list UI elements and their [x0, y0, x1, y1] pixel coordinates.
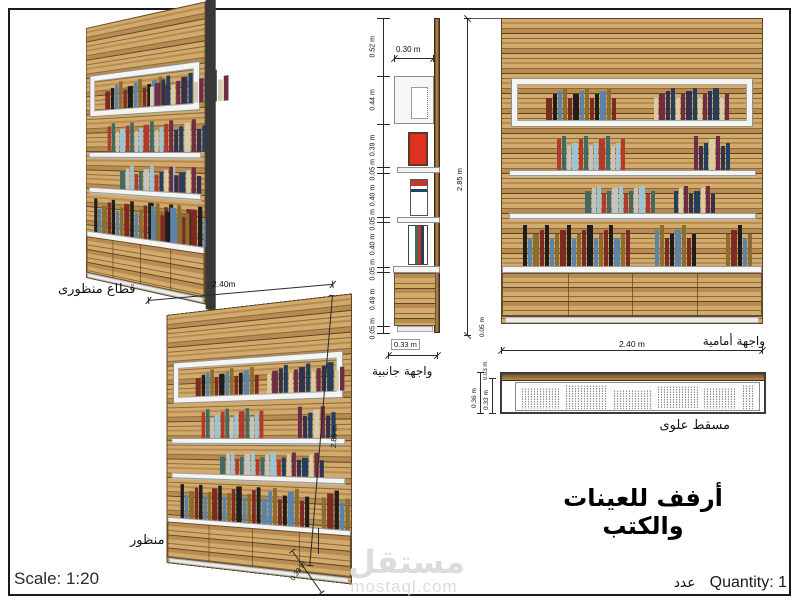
book-spine — [558, 91, 562, 120]
book-spine — [193, 81, 197, 102]
book-spine — [139, 209, 143, 239]
book-spine — [239, 373, 243, 394]
book-group — [523, 225, 630, 267]
book-spine — [621, 139, 625, 169]
book-spine — [660, 225, 664, 266]
book-spine — [139, 171, 143, 191]
book-spine — [261, 498, 267, 524]
dim-side-top-depth: 0.30 m — [396, 45, 420, 54]
book-spine — [689, 194, 693, 213]
book-spine — [131, 122, 135, 152]
book-spine — [557, 139, 561, 169]
book-spine — [302, 457, 308, 477]
book-spine — [731, 230, 737, 267]
boxed-shelf — [91, 62, 199, 116]
book-spine — [682, 225, 686, 266]
book-spine — [609, 225, 613, 266]
book-spine — [188, 73, 192, 103]
book-spine — [309, 455, 313, 478]
book-spine — [138, 79, 142, 107]
book-spine — [191, 167, 195, 194]
book-spine — [320, 460, 324, 478]
book-spine — [726, 234, 730, 267]
book-spine — [701, 188, 705, 213]
book-spine — [245, 408, 249, 438]
book-spine — [585, 191, 591, 213]
book-spine — [206, 372, 209, 395]
book-spine — [256, 459, 260, 476]
book-spine — [708, 91, 712, 120]
bookcase-panel — [167, 293, 352, 584]
quantity-arabic-label: عدد — [674, 575, 696, 591]
dim-front-height: 2.85 m — [455, 155, 464, 191]
extension-line — [318, 528, 319, 554]
book-spine — [223, 75, 228, 100]
book-spine — [273, 487, 277, 524]
book-spine — [111, 88, 114, 109]
book-spine — [303, 416, 307, 438]
book-spine — [587, 225, 593, 266]
book-spine — [174, 129, 178, 151]
book-spine — [242, 497, 246, 522]
shelf-board — [509, 170, 756, 176]
book-spine — [251, 452, 255, 476]
view-label-front: واجهة أمامية — [703, 334, 765, 348]
book-spine — [639, 186, 645, 213]
book-spine — [95, 198, 98, 232]
cabinet-top-profile — [393, 266, 440, 273]
book-spine — [226, 454, 230, 475]
book-spine — [703, 94, 707, 119]
book-spine — [269, 491, 273, 524]
book-spine — [105, 91, 110, 110]
book-spine — [185, 213, 189, 245]
book-spine — [340, 367, 344, 390]
book-spine — [607, 191, 611, 213]
book-spine — [190, 210, 196, 247]
boxed-shelf — [174, 352, 343, 403]
book-spine — [577, 234, 581, 267]
book-spine — [533, 234, 539, 267]
book-spine — [709, 139, 715, 169]
book-spine — [597, 186, 601, 213]
book-spine — [250, 417, 254, 438]
quantity-block: عدد Quantity: 1 — [674, 574, 787, 592]
book-spine — [698, 98, 702, 120]
shelf-board — [89, 152, 201, 158]
book-spine — [306, 363, 310, 391]
book-spine — [164, 169, 168, 192]
book-spine — [284, 365, 288, 393]
book-spine — [572, 238, 576, 267]
dim-front-base: 0.05 m — [479, 313, 486, 337]
book-spine — [711, 194, 715, 213]
book-group — [546, 87, 616, 119]
book-spine — [212, 488, 217, 520]
book-spine — [180, 484, 183, 518]
book-spine — [120, 207, 123, 236]
book-spine — [161, 79, 165, 105]
shelf-books-row — [181, 361, 334, 396]
book-spine — [135, 131, 139, 152]
book-group — [585, 185, 655, 213]
book-spine — [261, 457, 265, 476]
book-spine — [144, 124, 150, 152]
book-spine — [634, 188, 638, 213]
book-spine — [294, 370, 298, 392]
book-spine — [239, 411, 245, 437]
book-spine — [595, 94, 599, 119]
book-spine — [282, 457, 286, 477]
book-spine — [184, 494, 187, 518]
book-spine — [611, 146, 615, 170]
book-spine — [202, 375, 205, 396]
view-perspective-section: قطاع منظورى — [48, 8, 258, 308]
book-spine — [225, 409, 229, 438]
book-spine — [629, 191, 633, 213]
book-spine — [567, 146, 571, 170]
book-spine — [721, 146, 725, 170]
book-spine — [523, 225, 527, 266]
book-spine — [199, 484, 202, 519]
book-spine — [687, 238, 691, 267]
book-spine — [277, 460, 281, 477]
book-spine — [612, 188, 618, 213]
book-spine — [207, 492, 210, 520]
book-spine — [185, 122, 191, 152]
book-spine — [308, 413, 312, 438]
book-spine — [150, 86, 154, 106]
boxed-shelf — [512, 79, 751, 127]
shelf-books-row — [502, 225, 762, 267]
book-spine — [230, 368, 234, 394]
book-spine — [725, 94, 729, 119]
book-spine — [283, 495, 287, 525]
book-spine — [606, 136, 610, 170]
book-spine — [686, 91, 692, 120]
book-spine — [693, 88, 697, 120]
sheet-title: أرفف للعينات والكتب — [540, 484, 746, 540]
book-spine — [297, 460, 301, 477]
bookcase-panel — [501, 18, 763, 324]
dimension-segment: 0.52 m — [370, 18, 396, 76]
book-spine — [679, 188, 683, 213]
book-spine — [599, 234, 603, 267]
book-spine — [217, 79, 222, 101]
book-spine — [616, 143, 620, 170]
shelf-books-row — [502, 185, 762, 213]
book-spine — [607, 88, 611, 120]
dimension-line — [501, 350, 763, 351]
book-spine — [580, 91, 584, 120]
book-spine — [278, 499, 282, 525]
book-spine — [98, 209, 101, 233]
dim-plan-outer: 0.36 m — [471, 378, 478, 408]
book-spine — [134, 82, 138, 107]
book-spine — [151, 206, 155, 240]
book-spine — [174, 175, 178, 193]
book-spine — [675, 230, 681, 267]
book-spine — [706, 186, 710, 213]
shelf-board-profile — [397, 217, 440, 223]
perspective-model — [167, 293, 352, 584]
book-spine — [245, 454, 251, 476]
book-spine — [236, 486, 242, 522]
book-spine — [694, 136, 698, 170]
book-spine — [684, 186, 688, 213]
book-spine — [255, 414, 259, 438]
book-spine — [170, 208, 176, 243]
book-spine — [602, 194, 606, 213]
book-spine — [568, 98, 572, 120]
view-label-plan: مسقط علوى — [659, 418, 730, 433]
book-spine — [227, 493, 231, 521]
book-group — [694, 135, 730, 170]
book-spine — [130, 166, 133, 190]
book-spine — [713, 88, 719, 120]
book-spine — [218, 485, 222, 520]
book-spine — [655, 230, 659, 267]
book-spine — [743, 238, 747, 267]
book-spine — [600, 91, 606, 120]
book-group — [322, 489, 350, 530]
book-spine — [334, 490, 338, 529]
book-spine — [671, 88, 675, 120]
book-group — [267, 360, 344, 393]
view-top-plan: 0.36 m 0.33 m 0.03 m مسقط علوى — [470, 366, 770, 438]
book-spine — [210, 418, 214, 438]
cabinet-base — [505, 317, 760, 323]
book-spine — [567, 225, 571, 266]
book-group — [108, 119, 169, 152]
book-spine — [176, 80, 180, 104]
book-spine — [560, 230, 566, 267]
book-spine — [112, 123, 115, 152]
dimension-segment: 0.44 m — [370, 76, 396, 125]
cabinet-profile — [394, 273, 436, 326]
book-spine — [160, 127, 164, 152]
book-spine — [155, 203, 159, 241]
book-spine — [345, 498, 349, 529]
book-spine — [748, 234, 752, 267]
book-spine — [621, 234, 625, 267]
book-spine — [231, 452, 235, 476]
book-spine — [177, 205, 181, 245]
book-spine — [573, 94, 579, 119]
book-spine — [240, 456, 244, 475]
book-spine — [150, 166, 154, 191]
book-spine — [171, 84, 175, 105]
book-group — [654, 87, 729, 119]
book-spine — [155, 130, 159, 152]
bookcase-panel — [86, 1, 206, 304]
book-spine — [199, 78, 203, 103]
book-spine — [295, 488, 299, 526]
book-spine — [550, 238, 554, 267]
book-spine — [279, 368, 283, 393]
book-spine — [651, 191, 655, 213]
book-spine — [119, 81, 122, 108]
book-spine — [676, 98, 680, 120]
book-spine — [555, 234, 559, 267]
book-spine — [231, 489, 235, 521]
perspective-section-model — [86, 1, 206, 304]
book-spine — [313, 410, 319, 438]
book-spine — [612, 98, 616, 120]
book-spine — [299, 366, 305, 391]
book-spine — [646, 194, 650, 213]
shelf-books-row — [87, 118, 205, 152]
book-spine — [196, 378, 201, 396]
plan-outline — [500, 372, 766, 414]
book-spine — [143, 87, 147, 107]
book-spine — [120, 170, 125, 189]
book-spine — [716, 136, 720, 170]
book-spine — [624, 194, 628, 213]
book-group — [196, 366, 259, 396]
dimension-line — [394, 58, 434, 59]
book-spine — [108, 203, 111, 235]
shelf-books-row — [502, 135, 762, 170]
book-spine — [289, 373, 293, 392]
book-spine — [670, 234, 674, 267]
book-profile — [408, 225, 428, 265]
book-group — [220, 451, 286, 477]
book-spine — [738, 225, 742, 266]
book-spine — [546, 98, 552, 120]
book-spine — [126, 125, 129, 152]
book-spine — [126, 168, 129, 190]
book-spine — [327, 494, 333, 529]
book-spine — [545, 225, 549, 266]
book-spine — [267, 374, 271, 393]
view-label-side: واجهة جانبية — [372, 364, 432, 378]
book-spine — [197, 129, 201, 152]
view-front-elevation: 2.85 m 0.05 m 2.40 m واجهة أمامية — [455, 10, 793, 362]
book-spine — [562, 136, 566, 170]
dim-plan-inner: 0.33 m — [483, 382, 490, 410]
book-spine — [250, 367, 254, 394]
extension-line — [467, 18, 501, 19]
book-spine — [112, 199, 115, 235]
book-spine — [139, 128, 143, 152]
book-spine — [179, 172, 185, 193]
book-spine — [108, 126, 111, 152]
view-label-perspective: منظور — [130, 533, 165, 548]
book-spine — [322, 497, 326, 528]
book-spine — [115, 84, 118, 108]
book-spine — [255, 375, 259, 394]
book-spine — [143, 169, 148, 191]
book-spine — [206, 409, 209, 438]
book-spine — [654, 98, 658, 120]
book-spine — [102, 206, 107, 234]
book-spine — [225, 371, 229, 395]
book-spine — [192, 119, 196, 152]
book-spine — [665, 238, 669, 267]
book-spine — [165, 123, 169, 152]
book-spine — [197, 175, 201, 194]
book-spine — [144, 206, 148, 240]
book-group — [269, 486, 310, 526]
book-spine — [317, 368, 321, 391]
book-spine — [528, 238, 532, 267]
book-spine — [189, 491, 194, 518]
book-spine — [150, 121, 154, 152]
book-spine — [292, 452, 296, 477]
book-spine — [123, 89, 126, 108]
book-spine — [592, 188, 596, 213]
book-spine — [120, 128, 125, 152]
book-spine — [215, 377, 219, 395]
book-spine — [210, 369, 214, 395]
book-spine — [720, 98, 724, 120]
book-spine — [256, 487, 260, 523]
boxed-shelf-profile — [394, 76, 434, 124]
book-spine — [582, 230, 586, 267]
shelf-books-row — [522, 87, 742, 119]
book-spine — [340, 502, 344, 529]
book-spine — [134, 173, 138, 190]
book-spine — [203, 495, 206, 519]
book-group — [655, 225, 696, 267]
book-spine — [659, 94, 665, 119]
book-spine — [674, 191, 678, 213]
book-spine — [704, 143, 708, 170]
book-spine — [311, 372, 315, 392]
book-spine — [194, 488, 197, 519]
book-group — [159, 166, 201, 194]
book-group — [201, 407, 263, 438]
book-spine — [335, 370, 339, 390]
book-spine — [222, 496, 226, 521]
book-spine — [181, 77, 187, 104]
book-spine — [219, 374, 224, 395]
book-spine — [590, 98, 594, 120]
book-group — [169, 117, 207, 151]
book-spine — [234, 415, 238, 438]
book-spine — [230, 418, 234, 438]
book-spine — [186, 170, 190, 194]
book-spine — [272, 371, 278, 393]
book-spine — [540, 230, 544, 267]
dimension-line — [467, 18, 468, 336]
plan-back-panel — [502, 374, 764, 381]
base-profile — [397, 326, 433, 332]
book-spine — [614, 238, 620, 267]
book-spine — [234, 376, 238, 394]
book-spine — [159, 172, 163, 192]
book-spine — [221, 412, 225, 438]
book-spine — [327, 362, 333, 391]
cabinet — [502, 273, 762, 317]
book-spine — [270, 452, 276, 477]
book-spine — [553, 94, 557, 119]
book-spine — [287, 455, 291, 477]
scale-label: Scale: 1:20 — [14, 569, 99, 589]
book-spine — [125, 204, 130, 237]
book-spine — [579, 139, 583, 169]
book-spine — [306, 496, 310, 526]
book-spine — [594, 238, 598, 267]
book-group — [150, 68, 228, 106]
book-spine — [604, 230, 608, 267]
book-spine — [169, 167, 173, 193]
book-spine — [198, 206, 202, 247]
book-spine — [584, 136, 588, 170]
book-spine — [165, 211, 169, 242]
book-spine — [220, 456, 225, 475]
